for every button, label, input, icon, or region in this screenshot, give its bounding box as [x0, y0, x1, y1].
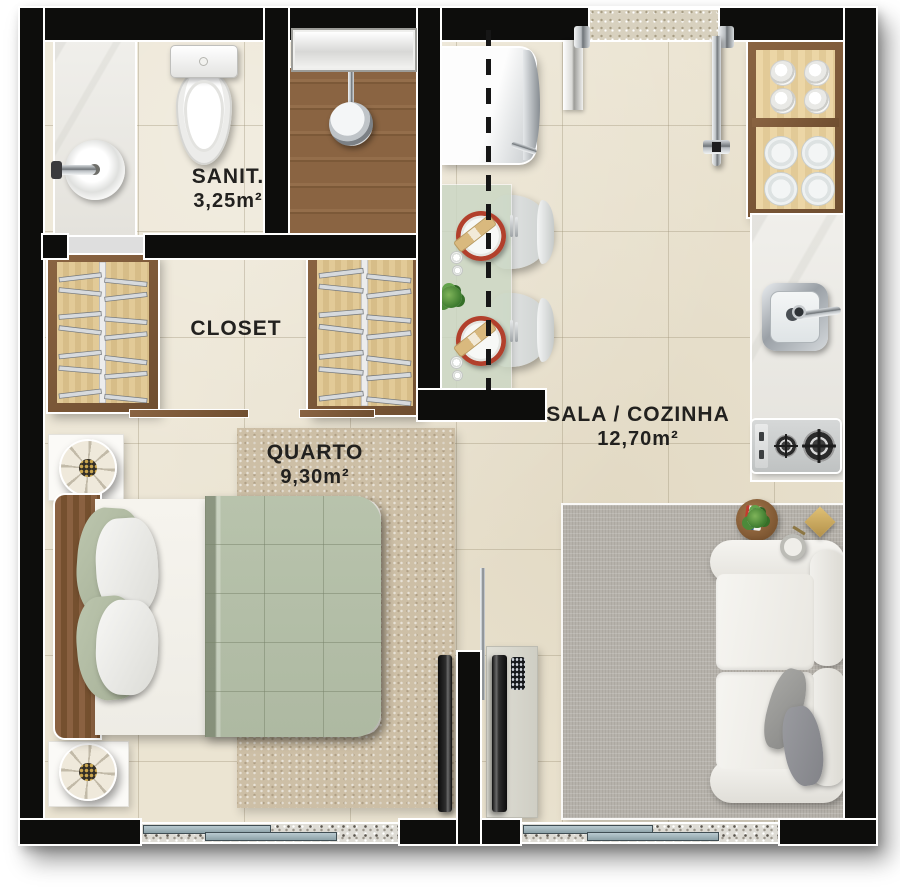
floor-lamp-base — [780, 534, 806, 560]
door-jamb — [574, 26, 590, 48]
sliding-window-pane — [587, 832, 719, 841]
cutlery-icon — [515, 217, 518, 237]
cup — [770, 60, 796, 86]
cutlery-icon — [515, 322, 518, 342]
cooktop-knob — [759, 432, 764, 441]
wall — [780, 820, 876, 844]
wardrobe-right — [308, 248, 422, 415]
bathroom-window — [293, 30, 415, 70]
room-label-sanit: SANIT. 3,25m² — [148, 164, 308, 214]
wardrobe-right-interior — [317, 257, 413, 406]
wardrobe-left-interior — [57, 262, 149, 403]
sofa-seat-cushion — [716, 574, 814, 670]
floor-plan: SANIT. 3,25m² CLOSET QUARTO 9,30m² SALA … — [18, 6, 876, 846]
chair-back — [537, 200, 554, 264]
room-label-closet: CLOSET — [156, 316, 316, 341]
cup — [804, 60, 830, 86]
plate — [764, 172, 798, 206]
basin-faucet — [56, 165, 96, 175]
cup — [452, 265, 463, 276]
room-label-quarto: QUARTO 9,30m² — [225, 440, 405, 490]
toilet-flush-button — [199, 57, 208, 66]
room-area: 3,25m² — [148, 189, 308, 214]
bedside-lamp-icon — [59, 743, 117, 801]
hanger-rail-icon — [317, 257, 413, 406]
closet-threshold — [300, 410, 374, 417]
double-bed — [55, 495, 381, 738]
wall — [145, 235, 425, 258]
wall — [265, 8, 288, 258]
room-area: 9,30m² — [225, 465, 405, 490]
wall — [43, 235, 67, 258]
bathroom-counter — [55, 40, 135, 238]
cup — [770, 88, 796, 114]
faucet-handle — [51, 161, 62, 179]
burner-large-icon — [802, 429, 836, 463]
room-area: 12,70m² — [528, 427, 748, 452]
wardrobe-left — [48, 253, 158, 412]
bathroom-door-threshold — [67, 237, 145, 253]
remote-control — [511, 657, 525, 690]
pillow-white — [94, 599, 159, 696]
sofa-back-cushion — [810, 550, 845, 666]
cutlery-icon — [510, 215, 513, 237]
tv-bedroom — [438, 655, 452, 812]
bedside-lamp-icon — [59, 439, 117, 497]
wall — [458, 652, 480, 844]
room-name: CLOSET — [156, 316, 316, 341]
entry-side-panel — [563, 40, 583, 110]
wall — [418, 8, 440, 420]
plate — [764, 136, 798, 170]
plate — [801, 172, 835, 206]
bedspread — [205, 496, 381, 737]
shower-head-icon — [329, 102, 373, 146]
hanger-rail-icon — [57, 262, 149, 403]
wall — [20, 820, 140, 844]
wall — [20, 8, 43, 844]
room-name: QUARTO — [225, 440, 405, 465]
cup — [450, 251, 463, 264]
plate — [801, 136, 835, 170]
tv-living-room — [492, 655, 507, 812]
cup — [804, 88, 830, 114]
kitchen-shelf-unit — [748, 42, 843, 217]
faucet-base — [792, 305, 806, 319]
closet-threshold — [130, 410, 248, 417]
shelf-divider — [752, 118, 839, 127]
sofa — [710, 540, 845, 803]
room-name: SANIT. — [148, 164, 308, 189]
table-plant-icon — [440, 286, 462, 308]
door-lock-icon — [712, 142, 721, 152]
cooktop-knob — [759, 450, 764, 459]
cutlery-icon — [510, 320, 513, 342]
wall — [418, 390, 545, 420]
sliding-window-pane — [205, 832, 337, 841]
cooktop — [752, 420, 840, 472]
cooktop-knob-panel — [755, 424, 768, 468]
section-dashed-line — [486, 30, 491, 390]
plant-icon — [747, 508, 767, 528]
wall — [845, 8, 876, 844]
curtain-pole — [480, 568, 485, 700]
cup — [450, 356, 463, 369]
entry-landing — [588, 8, 720, 42]
chair-back — [537, 298, 554, 362]
room-label-sala-cozinha: SALA / COZINHA 12,70m² — [528, 402, 748, 452]
cup — [452, 370, 463, 381]
burner-small-icon — [774, 434, 798, 458]
room-name: SALA / COZINHA — [528, 402, 748, 427]
